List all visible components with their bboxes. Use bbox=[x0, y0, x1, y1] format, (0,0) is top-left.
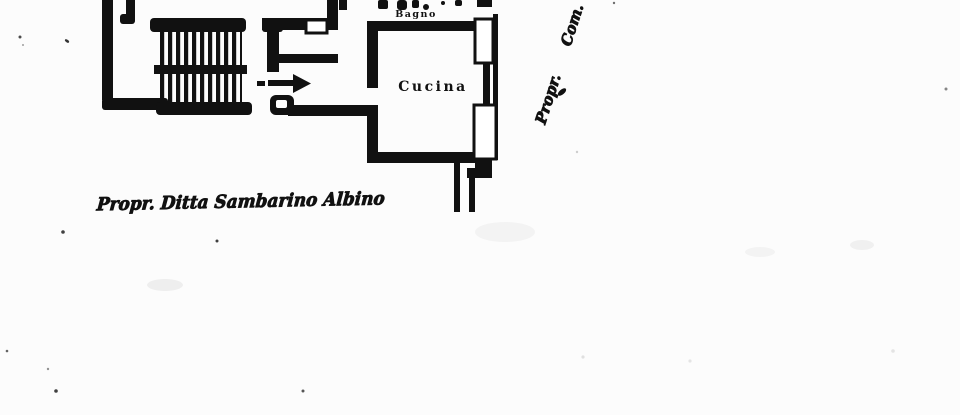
channel-right-line bbox=[469, 178, 475, 212]
staircase bbox=[150, 18, 252, 115]
door-notch bbox=[306, 20, 327, 33]
wall-cut-fragment bbox=[339, 0, 347, 10]
wall-bagno-cucina-divider bbox=[367, 21, 477, 31]
wall-corridor-top-rise bbox=[327, 0, 338, 20]
handwritten-side-note: Propr. Com. bbox=[531, 2, 587, 127]
side-note-word2: Com. bbox=[557, 2, 587, 49]
room-label-bagno: Bagno bbox=[395, 9, 437, 20]
side-note-word1: Propr. bbox=[531, 72, 564, 127]
floorplan-drawing: Bagno Cucina Propr. Ditta Sambarino Albi… bbox=[0, 0, 960, 415]
wall-stair-left-outer bbox=[102, 0, 113, 100]
wall-corridor-bottom bbox=[288, 105, 378, 116]
wall-corridor-left bbox=[267, 18, 279, 72]
stair-mid-landing bbox=[154, 65, 247, 74]
kitchen-bath-block: Bagno Cucina bbox=[367, 0, 498, 212]
stair-treads-lower bbox=[158, 74, 242, 104]
handwritten-owner-note: Propr. Ditta Sambarino Albino bbox=[95, 188, 386, 215]
entry-arrow-icon bbox=[257, 74, 311, 93]
stairwell-block bbox=[102, 0, 252, 115]
wall-right-step bbox=[467, 168, 492, 178]
stair-treads-upper bbox=[158, 32, 242, 67]
wall-corridor-stub bbox=[279, 54, 338, 63]
stair-top-landing bbox=[150, 18, 246, 32]
stair-bottom-landing bbox=[156, 102, 252, 115]
wall-cucina-bottom bbox=[367, 152, 477, 163]
wall-cucina-left bbox=[367, 21, 378, 88]
window-lower bbox=[474, 105, 496, 159]
wall-right-mid-line bbox=[483, 62, 490, 108]
channel-left-line bbox=[454, 163, 460, 212]
scanned-floorplan-page: Bagno Cucina Propr. Ditta Sambarino Albi… bbox=[0, 0, 960, 415]
room-label-cucina: Cucina bbox=[398, 79, 467, 95]
wall-stair-inner-foot bbox=[120, 14, 135, 24]
entry-corridor bbox=[257, 0, 378, 116]
wall-right-top-stub bbox=[477, 0, 492, 7]
window-upper bbox=[475, 19, 493, 63]
wall-corridor-foot-hole bbox=[276, 100, 287, 108]
